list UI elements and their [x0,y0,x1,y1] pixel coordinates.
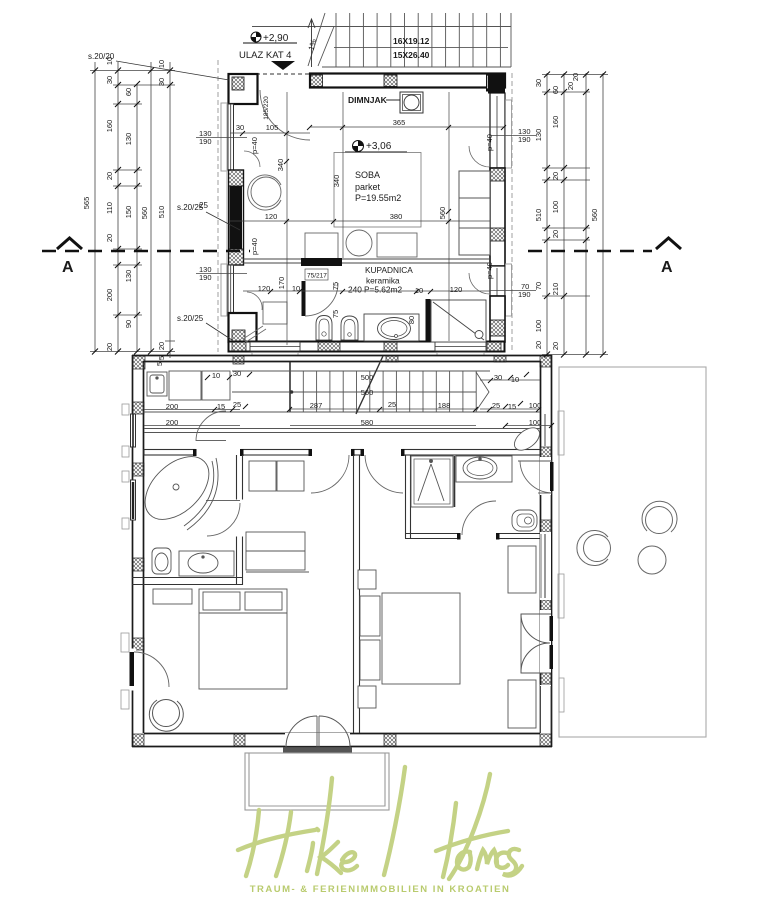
svg-text:s.20/20: s.20/20 [88,52,115,61]
svg-text:120: 120 [265,212,278,221]
svg-text:130: 130 [124,133,133,146]
svg-text:510: 510 [157,206,166,219]
svg-text:15: 15 [508,402,516,411]
svg-text:105: 105 [266,123,279,132]
svg-text:20: 20 [105,234,114,242]
svg-text:parket: parket [355,182,381,192]
svg-text:KUPADNICA: KUPADNICA [365,265,413,275]
svg-text:565: 565 [82,197,91,210]
svg-text:s.20/25: s.20/25 [177,314,204,323]
svg-text:70: 70 [534,282,543,290]
svg-text:A: A [661,259,673,276]
svg-text:5: 5 [157,356,166,360]
svg-text:10: 10 [415,286,423,295]
svg-text:100: 100 [534,320,543,333]
svg-text:P=19.55m2: P=19.55m2 [355,193,401,203]
svg-text:160: 160 [551,116,560,129]
svg-text:p=40: p=40 [485,262,494,279]
svg-text:287: 287 [310,401,323,410]
svg-text:380: 380 [390,212,403,221]
svg-text:80: 80 [407,316,416,324]
svg-text:60: 60 [124,88,133,96]
svg-text:100: 100 [529,418,542,427]
svg-text:10: 10 [157,60,166,68]
svg-text:580: 580 [361,418,374,427]
svg-text:210: 210 [551,283,560,296]
svg-text:16X19.12: 16X19.12 [393,36,430,46]
svg-text:190: 190 [518,135,531,144]
svg-text:75: 75 [331,282,340,290]
svg-text:20: 20 [105,172,114,180]
svg-text:20: 20 [534,341,543,349]
svg-text:10: 10 [511,375,519,384]
svg-text:75/217: 75/217 [307,273,327,280]
svg-text:20: 20 [571,73,580,81]
svg-text:25: 25 [492,401,500,410]
svg-text:340: 340 [332,175,341,188]
svg-text:p=40: p=40 [485,134,494,151]
svg-text:75: 75 [331,310,340,318]
svg-text:190: 190 [518,290,531,299]
svg-text:190: 190 [199,273,212,282]
svg-text:+2,90: +2,90 [263,33,289,44]
svg-text:100: 100 [551,201,560,214]
svg-text:15: 15 [217,402,225,411]
svg-text:15X26.40: 15X26.40 [393,50,430,60]
svg-text:190: 190 [199,137,212,146]
svg-text:20: 20 [157,342,166,350]
svg-text:90: 90 [124,320,133,328]
svg-text:p=40: p=40 [250,238,259,255]
svg-text:500: 500 [361,373,374,382]
svg-text:365: 365 [393,118,406,127]
svg-text:TRAUM- & FERIENIMMOBILIEN IN K: TRAUM- & FERIENIMMOBILIEN IN KROATIEN [250,884,511,895]
svg-text:20: 20 [566,82,575,90]
svg-text:560: 560 [361,388,374,397]
svg-text:130: 130 [534,129,543,142]
svg-text:130: 130 [124,270,133,283]
svg-text:110: 110 [105,202,114,214]
svg-text:SOBA: SOBA [355,170,380,180]
svg-text:560: 560 [140,207,149,220]
svg-text:25: 25 [388,400,396,409]
svg-text:DIMNJAK: DIMNJAK [348,95,388,105]
svg-text:20: 20 [551,230,560,238]
svg-text:510: 510 [534,209,543,222]
svg-text:30: 30 [236,123,244,132]
svg-text:30: 30 [105,76,114,84]
svg-text:185/220: 185/220 [263,96,270,120]
svg-text:30: 30 [233,369,241,378]
svg-text:20: 20 [105,343,114,351]
svg-text:P=5.62m2: P=5.62m2 [364,285,402,295]
svg-text:188: 188 [438,401,451,410]
svg-text:20: 20 [551,342,560,350]
svg-text:100: 100 [529,401,542,410]
svg-text:ULAZ KAT 4: ULAZ KAT 4 [239,50,291,61]
svg-text:30: 30 [494,373,502,382]
svg-text:120: 120 [258,284,271,293]
svg-text:25: 25 [233,400,241,409]
svg-text:60: 60 [551,86,560,94]
svg-text:150: 150 [124,206,133,219]
svg-text:170: 170 [277,277,286,290]
svg-text:10: 10 [292,284,300,293]
svg-text:160: 160 [105,120,114,133]
svg-text:120: 120 [450,285,463,294]
svg-text:200: 200 [105,289,114,302]
svg-text:340: 340 [276,159,285,172]
svg-text:10: 10 [212,371,220,380]
svg-text:560: 560 [590,209,599,222]
svg-text:30: 30 [157,78,166,86]
svg-text:200: 200 [166,418,179,427]
svg-text:25: 25 [199,201,208,210]
svg-text:p=40: p=40 [250,137,259,154]
svg-text:+3,06: +3,06 [366,141,392,152]
svg-text:5: 5 [157,362,164,366]
svg-text:20: 20 [551,172,560,180]
svg-text:30: 30 [534,79,543,87]
svg-text:560: 560 [438,207,447,220]
svg-text:240: 240 [348,285,362,295]
svg-text:200: 200 [166,402,179,411]
svg-text:A: A [62,259,74,276]
